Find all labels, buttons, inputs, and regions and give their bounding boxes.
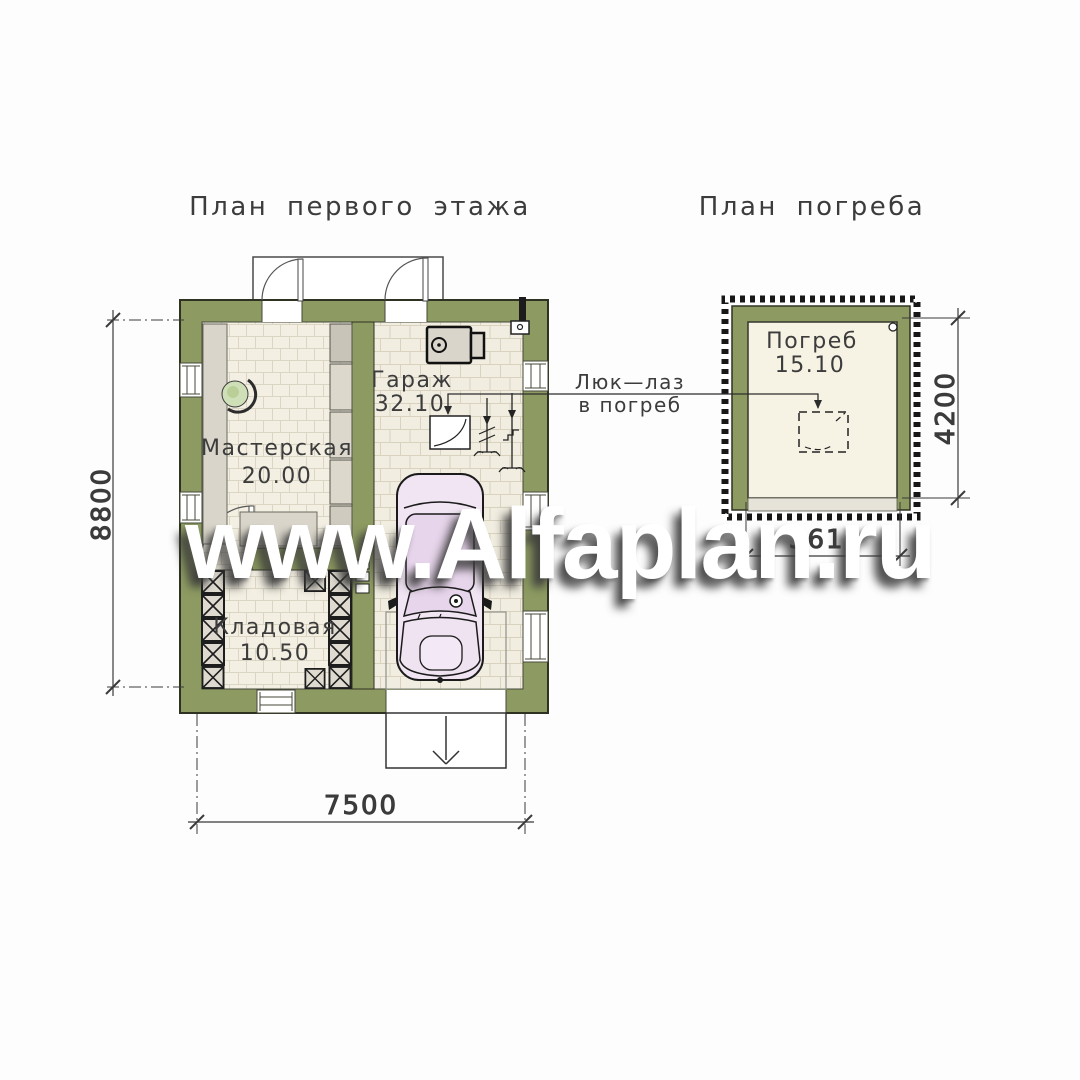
porch-outline [253, 257, 443, 303]
cellar-vent-icon [889, 323, 897, 331]
dim-plan-width-value: 7500 [324, 791, 398, 821]
dim-plan-height: 8800 [87, 310, 184, 696]
first-floor-plan: Мастерская 20.00 Гараж 32.10 Кладовая 10… [180, 257, 548, 768]
storage-area: 10.50 [240, 641, 310, 666]
floor-plan-sheet: План первого этажа План погреба [0, 0, 1080, 1080]
workshop-counter-bottom [240, 512, 317, 546]
workshop-area: 20.00 [242, 464, 312, 489]
workbench [427, 327, 484, 363]
interior-wall-partition [252, 548, 352, 570]
cellar-plan: Погреб 15.10 [725, 299, 917, 517]
cellar-label: Погреб [766, 329, 858, 354]
garage-hatch [430, 416, 470, 449]
garage-label: Гараж [371, 368, 453, 393]
callout-line2: в погреб [578, 393, 681, 417]
workshop-counter-left [203, 324, 227, 544]
dim-cellar-width-value: 3610 [789, 525, 863, 555]
storage-label: Кладовая [213, 615, 337, 640]
garage-area: 32.10 [375, 392, 445, 417]
dim-plan-height-value: 8800 [87, 467, 117, 541]
title-first-floor: План первого этажа [189, 192, 531, 222]
cellar-bottom-wall [748, 498, 897, 511]
title-cellar: План погреба [699, 192, 925, 222]
wall-steps [356, 560, 369, 593]
callout-line1: Люк—лаз [575, 370, 685, 394]
dim-cellar-height-value: 4200 [931, 371, 961, 445]
garage-gate [386, 690, 506, 768]
plan-drawing: План первого этажа План погреба [0, 0, 1080, 1080]
car [388, 474, 492, 683]
workshop-cabinets [330, 324, 352, 546]
cellar-area: 15.10 [775, 353, 845, 378]
workshop-label: Мастерская [201, 436, 353, 461]
